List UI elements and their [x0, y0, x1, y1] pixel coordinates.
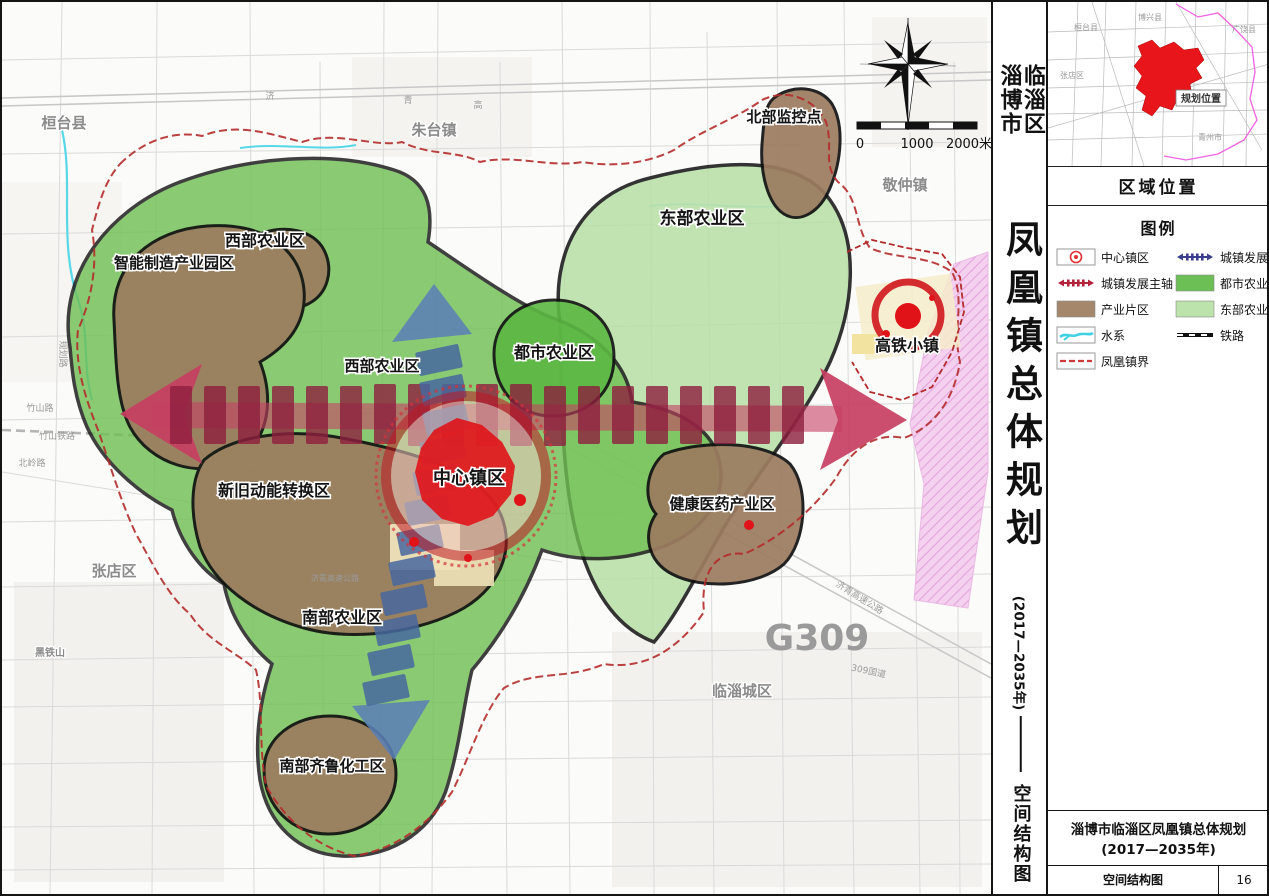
legend-item-east-agriculture: 东部农业区	[1175, 300, 1269, 318]
svg-text:西部农业区: 西部农业区	[344, 357, 419, 375]
location-inset-svg: 桓台县 博兴县 广饶县 张店区 青州市 规划位置	[1048, 2, 1269, 166]
center-town-icon	[1056, 248, 1096, 266]
jurisdiction-labels: 临淄区 淄博市	[997, 64, 1044, 136]
svg-text:济青高速公路: 济青高速公路	[311, 573, 359, 583]
svg-text:东部农业区: 东部农业区	[660, 208, 745, 229]
east-agriculture-icon	[1175, 300, 1215, 318]
svg-text:青州市: 青州市	[1198, 132, 1222, 142]
plan-period: (2017—2035年)	[1011, 596, 1031, 711]
legend-label: 产业片区	[1101, 301, 1149, 318]
svg-text:青: 青	[403, 94, 412, 106]
svg-text:张店区: 张店区	[91, 562, 136, 580]
svg-text:1000: 1000	[900, 137, 933, 152]
spatial-structure-map: 济 青 高 竹山路 竹山铁路 北岭路 规划路 济青高速公路 济青高速公路 G30…	[2, 2, 991, 894]
svg-text:0: 0	[856, 137, 864, 152]
svg-text:竹山铁路: 竹山铁路	[39, 430, 75, 442]
town-boundary-icon	[1056, 352, 1096, 370]
info-panel: 桓台县 博兴县 广饶县 张店区 青州市 规划位置 区域位置 图例	[1046, 2, 1269, 894]
district-label: 临淄区	[1021, 64, 1044, 136]
svg-text:健康医药产业区: 健康医药产业区	[669, 495, 774, 513]
svg-text:济青高速公路: 济青高速公路	[834, 578, 886, 617]
svg-text:规划路: 规划路	[57, 340, 69, 367]
legend-label: 都市农业区	[1220, 275, 1269, 292]
svg-text:高铁小镇: 高铁小镇	[875, 336, 939, 355]
legend-label: 东部农业区	[1220, 301, 1269, 318]
legend-label: 凤凰镇界	[1101, 353, 1149, 370]
svg-text:都市农业区: 都市农业区	[513, 343, 594, 362]
urban-agriculture-icon	[1175, 274, 1215, 292]
sheet-subtitle: 空间结构图	[1008, 784, 1034, 884]
svg-text:2000米: 2000米	[946, 137, 991, 152]
legend-item-water: 水系	[1056, 326, 1173, 344]
title-block-plan-name: 淄博市临淄区凤凰镇总体规划(2017—2035年)	[1048, 811, 1269, 866]
location-inset-map: 桓台县 博兴县 广饶县 张店区 青州市 规划位置	[1048, 2, 1269, 167]
location-header: 区域位置	[1048, 167, 1269, 206]
svg-text:南部农业区: 南部农业区	[302, 608, 382, 627]
title-block-page-number: 16	[1218, 866, 1269, 894]
legend-item-railway: 铁路	[1175, 326, 1269, 344]
svg-text:北部监控点: 北部监控点	[746, 108, 821, 126]
svg-text:黑铁山: 黑铁山	[35, 646, 65, 659]
legend-item-urban-agriculture: 都市农业区	[1175, 274, 1269, 292]
legend-item-center-town: 中心镇区	[1056, 248, 1173, 266]
legend-label: 铁路	[1220, 327, 1244, 344]
planning-location-callout: 规划位置	[1176, 90, 1226, 106]
svg-text:南部齐鲁化工区: 南部齐鲁化工区	[279, 757, 384, 775]
legend-label: 城镇发展次轴	[1220, 249, 1269, 266]
svg-text:临淄城区: 临淄城区	[712, 682, 772, 700]
svg-text:竹山路: 竹山路	[26, 402, 53, 414]
svg-text:中心镇区: 中心镇区	[433, 467, 505, 489]
title-block-row: 空间结构图 16	[1048, 866, 1269, 894]
plan-period-wrap: (2017—2035年)	[993, 598, 1048, 708]
svg-text:桓台县: 桓台县	[41, 114, 86, 132]
title-block-sheet-name: 空间结构图	[1048, 866, 1218, 894]
legend: 中心镇区 城镇发展次轴	[1048, 241, 1269, 370]
svg-text:智能制造产业园区: 智能制造产业园区	[114, 254, 234, 272]
legend-item-boundary: 凤凰镇界	[1056, 352, 1173, 370]
svg-text:高: 高	[473, 99, 482, 111]
secondary-axis-icon	[1175, 248, 1215, 266]
legend-item-empty	[1175, 352, 1269, 370]
svg-text:济: 济	[265, 90, 274, 102]
svg-text:北岭路: 北岭路	[18, 457, 45, 469]
svg-text:张店区: 张店区	[1060, 70, 1084, 80]
title-separator	[1019, 716, 1022, 772]
city-label: 淄博市	[997, 64, 1020, 136]
svg-text:西部农业区: 西部农业区	[225, 231, 305, 250]
svg-text:桓台县: 桓台县	[1074, 22, 1098, 32]
title-strip: 临淄区 淄博市 凤凰镇总体规划 (2017—2035年) 空间结构图	[991, 2, 1048, 894]
legend-item-main-axis: 城镇发展主轴	[1056, 274, 1173, 292]
svg-text:敬仲镇: 敬仲镇	[881, 176, 927, 194]
industry-zone-icon	[1056, 300, 1096, 318]
svg-text:新旧动能转换区: 新旧动能转换区	[218, 481, 330, 500]
water-system-icon	[1056, 326, 1096, 344]
legend-item-secondary-axis: 城镇发展次轴	[1175, 248, 1269, 266]
railway-icon	[1175, 326, 1215, 344]
svg-text:博兴县: 博兴县	[1138, 12, 1162, 22]
plan-title: 凤凰镇总体规划	[994, 220, 1048, 556]
title-block: 淄博市临淄区凤凰镇总体规划(2017—2035年) 空间结构图 16	[1048, 810, 1269, 894]
svg-text:朱台镇: 朱台镇	[411, 121, 456, 139]
svg-text:G309: G309	[765, 618, 870, 659]
plan-sheet: 济 青 高 竹山路 竹山铁路 北岭路 规划路 济青高速公路 济青高速公路 G30…	[0, 0, 1269, 896]
legend-item-industry: 产业片区	[1056, 300, 1173, 318]
legend-label: 城镇发展主轴	[1101, 275, 1173, 292]
svg-text:广饶县: 广饶县	[1232, 24, 1256, 34]
svg-text:规划位置: 规划位置	[1181, 92, 1221, 105]
legend-label: 水系	[1101, 327, 1125, 344]
map-canvas: 济 青 高 竹山路 竹山铁路 北岭路 规划路 济青高速公路 济青高速公路 G30…	[2, 2, 991, 894]
legend-header: 图例	[1048, 206, 1269, 241]
legend-label: 中心镇区	[1101, 249, 1149, 266]
main-axis-icon	[1056, 274, 1096, 292]
